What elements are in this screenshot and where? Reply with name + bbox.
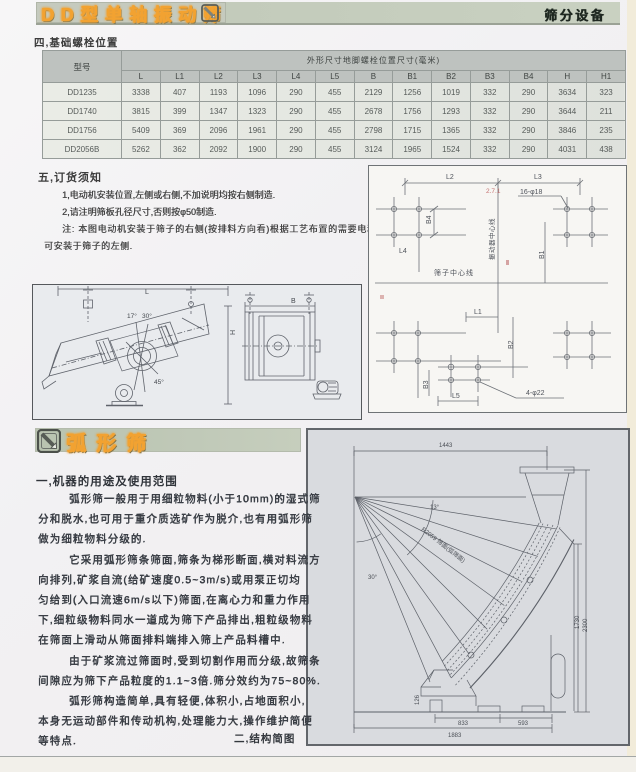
- svg-text:L: L: [145, 289, 149, 296]
- svg-text:1443: 1443: [439, 443, 453, 449]
- svg-text:4-φ22: 4-φ22: [526, 390, 545, 397]
- svg-text:L2: L2: [446, 174, 454, 181]
- svg-text:B2: B2: [508, 340, 515, 349]
- svg-text:2.7.1: 2.7.1: [486, 188, 501, 195]
- svg-text:B1: B1: [539, 250, 546, 259]
- svg-text:30°: 30°: [368, 575, 378, 581]
- svg-text:B3: B3: [423, 380, 430, 389]
- svg-text:16-φ18: 16-φ18: [520, 189, 543, 196]
- svg-text:1883: 1883: [448, 733, 462, 739]
- svg-text:2300: 2300: [583, 618, 589, 632]
- svg-text:H: H: [230, 330, 237, 335]
- svg-text:筛子中心线: 筛子中心线: [434, 268, 474, 277]
- svg-text:126: 126: [415, 694, 421, 705]
- svg-text:13°: 13°: [430, 505, 440, 511]
- svg-text:45°: 45°: [154, 378, 164, 386]
- svg-text:1730: 1730: [575, 615, 581, 629]
- svg-text:B4: B4: [426, 215, 433, 224]
- svg-text:L3: L3: [534, 174, 542, 181]
- svg-text:L4: L4: [399, 248, 407, 255]
- svg-text:L1: L1: [474, 309, 482, 316]
- svg-text:30°: 30°: [142, 312, 152, 320]
- svg-text:593: 593: [518, 721, 529, 727]
- svg-text:L5: L5: [452, 393, 460, 400]
- svg-text:833: 833: [458, 721, 469, 727]
- svg-text:振动器中心线: 振动器中心线: [487, 218, 496, 260]
- svg-text:B: B: [291, 298, 296, 305]
- svg-text:17°: 17°: [127, 312, 137, 320]
